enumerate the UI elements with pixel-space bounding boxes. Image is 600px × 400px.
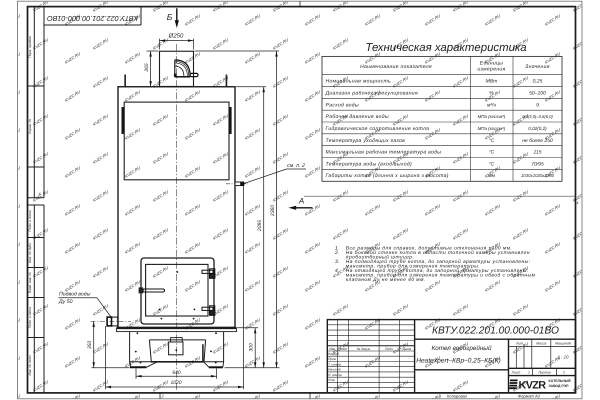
svg-text:Габариты котла (длинна х ширин: Габариты котла (длинна х ширина х высота…	[326, 173, 449, 179]
svg-text:Лист: Лист	[338, 347, 348, 351]
svg-text:70/95: 70/95	[531, 161, 544, 167]
svg-text:Подп.: Подп.	[385, 347, 394, 351]
svg-text:Рабочее давление воды: Рабочее давление воды	[326, 114, 389, 120]
svg-text:1030х1020х2360: 1030х1020х2360	[521, 173, 555, 178]
svg-text:Температура воды (вход/выход): Температура воды (вход/выход)	[326, 161, 412, 167]
svg-text:3.: 3.	[335, 259, 340, 265]
svg-text:Перв. примен.: Перв. примен.	[28, 35, 32, 58]
svg-text:KVZR: KVZR	[519, 380, 547, 392]
svg-text:°С: °С	[489, 161, 495, 167]
svg-text:Heatexpert–КВр–0,25–КБ(К): Heatexpert–КВр–0,25–КБ(К)	[416, 358, 501, 365]
svg-text:мм: мм	[488, 173, 495, 179]
svg-text:1: 1	[439, 394, 441, 399]
svg-text:Лит.: Лит.	[515, 341, 524, 345]
svg-text:Гидравлическое сопротивление к: Гидравлическое сопротивление котла	[326, 126, 430, 132]
svg-text:см. п. 2: см. п. 2	[287, 163, 305, 169]
svg-text:2360: 2360	[270, 205, 276, 217]
svg-text:не более 250: не более 250	[522, 138, 553, 144]
svg-text:м³/ч: м³/ч	[487, 102, 496, 108]
svg-text:Утв.: Утв.	[328, 378, 335, 382]
svg-text:МПа (кгс/см²): МПа (кгс/см²)	[478, 114, 506, 119]
svg-text:Лист: Лист	[511, 371, 521, 375]
svg-text:%: %	[489, 91, 494, 97]
svg-text:Масса: Масса	[536, 341, 546, 345]
svg-text:0,02(0,2): 0,02(0,2)	[528, 126, 547, 131]
svg-text:265: 265	[144, 63, 150, 73]
svg-text:КВТУ.022.201.00.000-01ВО: КВТУ.022.201.00.000-01ВО	[432, 326, 559, 337]
svg-text:1020: 1020	[170, 380, 181, 386]
svg-text:А: А	[298, 197, 304, 206]
svg-text:Разраб.: Разраб.	[328, 352, 340, 356]
svg-text:9: 9	[536, 102, 539, 108]
svg-text:4: 4	[39, 192, 41, 196]
svg-text:Б: Б	[167, 12, 173, 22]
svg-text:4.: 4.	[335, 268, 340, 274]
svg-text:Диапазон рабочего регулировани: Диапазон рабочего регулирования	[325, 91, 418, 97]
svg-text:Техническая характеристика: Техническая характеристика	[365, 42, 526, 54]
svg-text:КОТЕЛЬНЫЙ: КОТЕЛЬНЫЙ	[549, 378, 572, 383]
svg-text:Температура уходящих газов: Температура уходящих газов	[326, 138, 406, 144]
svg-text:Инв. № подл.: Инв. № подл.	[28, 354, 32, 375]
svg-text:Т. контр.: Т. контр.	[328, 363, 342, 367]
svg-text:Максимальная рабочая температу: Максимальная рабочая температура воды	[326, 150, 442, 156]
svg-text:640: 640	[172, 370, 181, 376]
svg-text:клапаном Ду не менее 40 мм.: клапаном Ду не менее 40 мм.	[346, 277, 426, 283]
svg-text:Изм: Изм	[329, 347, 336, 351]
svg-text:0,3(3,0)–0,6(6,0): 0,3(3,0)–0,6(6,0)	[522, 114, 553, 119]
svg-text:№ докум.: № докум.	[357, 347, 371, 351]
svg-text:Расход воды: Расход воды	[326, 102, 359, 108]
svg-text:0,25: 0,25	[533, 79, 543, 85]
svg-text:2.: 2.	[334, 250, 340, 256]
svg-text:350: 350	[87, 341, 93, 350]
svg-text:Номинальная мощность: Номинальная мощность	[326, 79, 392, 85]
svg-text:50–100: 50–100	[529, 91, 546, 97]
svg-text:°С: °С	[489, 150, 495, 156]
svg-text:Подп. и дата: Подп. и дата	[28, 307, 32, 328]
svg-text:1: 1	[528, 371, 530, 375]
svg-text:Пров.: Пров.	[328, 357, 337, 361]
svg-text:115: 115	[534, 150, 542, 156]
svg-text:измерения: измерения	[477, 66, 505, 72]
svg-text:Подп. и дата: Подп. и дата	[28, 210, 32, 231]
svg-text:Значения: Значения	[525, 64, 550, 70]
svg-text:Ду 50: Ду 50	[58, 299, 73, 305]
svg-text:4: 4	[577, 201, 579, 205]
svg-text:1 : 10: 1 : 10	[558, 354, 570, 359]
svg-text:Масштаб: Масштаб	[555, 341, 571, 345]
svg-text:ЗАВОД РЭП: ЗАВОД РЭП	[549, 384, 570, 388]
svg-text:Н. контр.: Н. контр.	[328, 373, 342, 377]
svg-text:2: 2	[562, 371, 565, 375]
svg-text:Дата: Дата	[402, 347, 412, 351]
svg-text:300: 300	[248, 343, 254, 352]
svg-text:МВт: МВт	[486, 79, 498, 85]
svg-text:Котел водогрейный: Котел водогрейный	[432, 345, 492, 352]
svg-text:Наименование показателя: Наименование показателя	[360, 64, 432, 70]
svg-text:Справ. №: Справ. №	[28, 118, 32, 134]
svg-text:Ø250: Ø250	[168, 33, 184, 40]
svg-text:Нач.отд: Нач.отд	[328, 368, 341, 372]
svg-text:2095: 2095	[257, 220, 263, 232]
svg-text:МПа (кгс/см²): МПа (кгс/см²)	[478, 126, 506, 131]
svg-text:КВТУ.022.201.00.000-01ВО: КВТУ.022.201.00.000-01ВО	[47, 14, 138, 23]
svg-text:Копировал: Копировал	[447, 394, 468, 399]
svg-text:°С: °С	[489, 138, 495, 144]
svg-text:Подвод воды: Подвод воды	[59, 292, 91, 298]
svg-text:Взам. инв. №: Взам. инв. №	[28, 272, 32, 293]
svg-text:Листов: Листов	[537, 371, 551, 375]
svg-text:Формат А3: Формат А3	[518, 394, 541, 399]
svg-text:Инв. № дубл.: Инв. № дубл.	[28, 242, 32, 263]
